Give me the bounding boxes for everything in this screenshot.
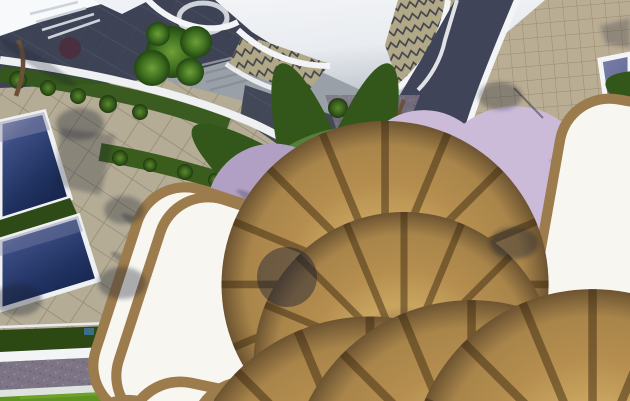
maroon-shrub [59, 37, 81, 59]
resort-aerial-render [0, 0, 630, 401]
shaded-umbrella-overlay [257, 247, 317, 307]
render-canvas [0, 0, 630, 401]
